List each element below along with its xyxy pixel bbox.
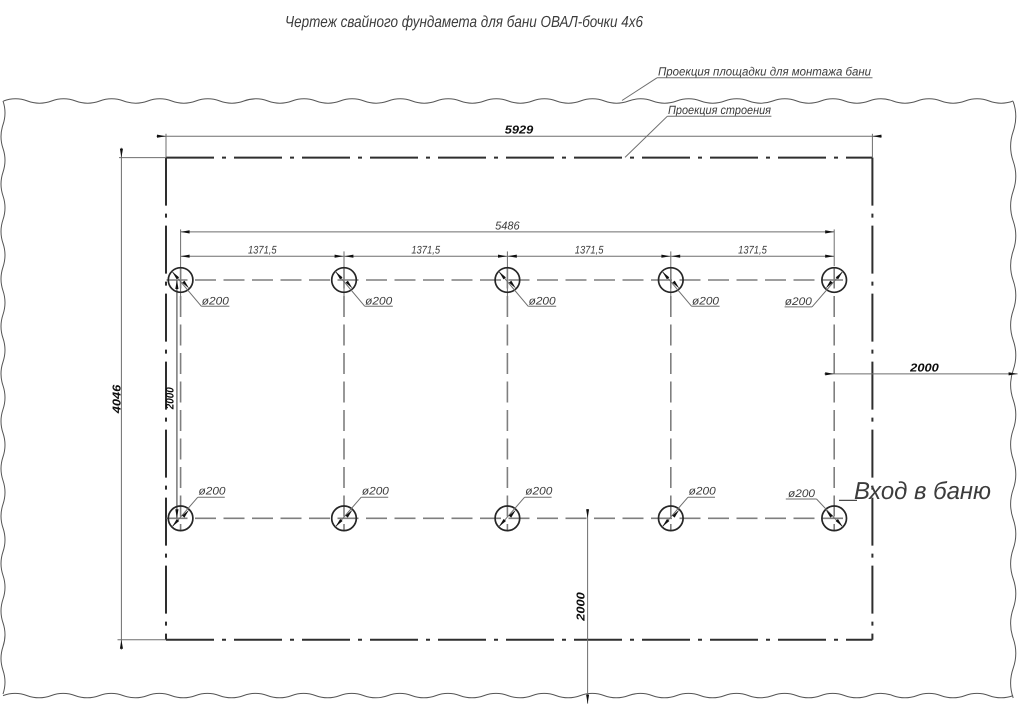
svg-text:Проекция площадки для монтажа: Проекция площадки для монтажа бани [658, 65, 871, 79]
svg-text:Проекция строения: Проекция строения [668, 103, 772, 117]
svg-text:ø200: ø200 [692, 295, 720, 307]
svg-text:ø200: ø200 [689, 486, 717, 498]
svg-text:1371,5: 1371,5 [738, 244, 767, 256]
svg-text:ø200: ø200 [365, 295, 393, 307]
svg-text:2000: 2000 [909, 363, 939, 375]
svg-text:1371,5: 1371,5 [248, 244, 277, 256]
svg-text:1371,5: 1371,5 [575, 244, 604, 256]
svg-text:2000: 2000 [576, 592, 588, 622]
svg-text:Чертеж свайного фундамета для: Чертеж свайного фундамета для бани ОВАЛ-… [285, 14, 643, 31]
svg-text:5486: 5486 [495, 221, 520, 233]
svg-text:1371,5: 1371,5 [411, 244, 440, 256]
svg-text:ø200: ø200 [785, 296, 813, 308]
svg-text:ø200: ø200 [362, 486, 390, 498]
svg-text:2000: 2000 [165, 386, 177, 410]
svg-text:ø200: ø200 [202, 295, 230, 307]
svg-text:5929: 5929 [505, 124, 534, 136]
svg-text:4046: 4046 [112, 384, 124, 414]
svg-text:Вход в баню: Вход в баню [854, 478, 991, 505]
svg-text:ø200: ø200 [529, 295, 557, 307]
svg-text:ø200: ø200 [788, 488, 816, 500]
svg-text:ø200: ø200 [525, 486, 553, 498]
svg-text:ø200: ø200 [199, 486, 227, 498]
